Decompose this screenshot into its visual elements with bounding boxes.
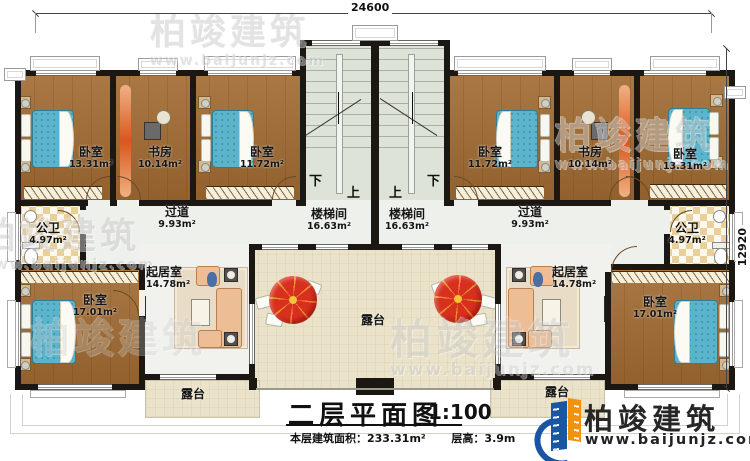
room-name: 楼梯间: [294, 208, 364, 222]
room-area: 11.72m²: [455, 160, 525, 171]
stair-direction-down: 下: [309, 170, 322, 189]
floor-plan-canvas: 柏竣建筑 www.baijunjz.com 柏竣建筑 www.baijunjz.…: [0, 0, 750, 461]
pillow: [719, 304, 729, 329]
window: [316, 244, 348, 250]
door-opening: [454, 200, 478, 206]
room-label-bedroom-top-right2: 卧室 11.72m²: [455, 146, 525, 171]
room-name: 卧室: [227, 146, 297, 160]
floor-area-label: 本层建筑面积：: [290, 432, 367, 445]
bay-window: [724, 86, 746, 99]
room-name: 卧室: [60, 294, 130, 308]
room-label-living-left: 起居室 14.78m²: [146, 266, 210, 291]
wall-segment: [139, 264, 145, 390]
room-label-terrace-right: 露台: [532, 386, 582, 400]
corner-table: [224, 332, 238, 346]
window-sill-hatch: [650, 184, 726, 198]
desk: [591, 122, 608, 140]
title-underline: [286, 424, 462, 426]
dimension-right-value: 12920: [736, 225, 749, 269]
room-area: 10.14m²: [125, 160, 195, 171]
floor-height-label: 层高：: [451, 432, 484, 445]
window: [452, 244, 488, 250]
brand-url: www.baijunjz.com: [585, 432, 750, 448]
room-label-stairwell-left: 楼梯间 16.63m²: [294, 208, 364, 233]
room-name: 起居室: [146, 266, 210, 280]
patio-umbrella: [269, 276, 317, 324]
room-area: 4.97m²: [652, 236, 722, 247]
room-name: 卧室: [620, 296, 690, 310]
room-name: 卧室: [650, 148, 720, 162]
terrace-parapet: [256, 388, 494, 390]
room-label-bedroom-top-left: 卧室 13.31m²: [56, 146, 126, 171]
room-name: 书房: [125, 146, 195, 160]
room-name: 书房: [555, 146, 625, 160]
room-name: 露台: [348, 314, 398, 328]
watermark-brand: 柏竣建筑: [150, 12, 310, 53]
room-area: 9.93m²: [142, 220, 212, 231]
dimension-top-value: 24600: [348, 1, 392, 14]
drawing-scale: 1:100: [428, 400, 492, 424]
bay-window: [204, 56, 296, 71]
window-sill-hatch: [612, 271, 729, 283]
wall-segment: [190, 70, 196, 206]
wall-segment: [444, 40, 450, 206]
wall-segment: [110, 70, 116, 206]
nightstand: [710, 94, 723, 107]
door-opening: [626, 200, 648, 206]
stair-direction-up: 上: [347, 182, 360, 201]
sliding-door: [495, 304, 501, 364]
stair-direction-down: 下: [427, 170, 440, 189]
stair-arrow-left: [338, 92, 339, 124]
room-name: 公卫: [13, 222, 83, 236]
coffee-table: [191, 299, 210, 326]
room-label-study-right: 书房 10.14m²: [555, 146, 625, 171]
room-label-bedroom-top-left2: 卧室 11.72m²: [227, 146, 297, 171]
room-area: 13.31m²: [650, 162, 720, 173]
pillow: [21, 139, 31, 162]
dimension-extension: [35, 13, 36, 33]
bay-window: [572, 58, 612, 71]
window-sill: [734, 300, 743, 368]
room-label-terrace-center: 露台: [348, 314, 398, 328]
wall-segment: [15, 264, 145, 270]
window: [402, 244, 434, 250]
sliding-door: [160, 374, 216, 380]
room-name: 露台: [168, 388, 218, 402]
toilet: [24, 248, 38, 265]
armchair: [198, 330, 222, 348]
room-label-bedroom-bottom-right: 卧室 17.01m²: [620, 296, 690, 321]
room-area: 11.72m²: [227, 160, 297, 171]
room-area: 16.63m²: [372, 222, 442, 233]
room-label-hall-left: 过道 9.93m²: [142, 206, 212, 231]
room-area: 14.78m²: [552, 280, 616, 291]
bay-window: [650, 56, 720, 71]
nightstand: [198, 96, 211, 109]
room-area: 4.97m²: [13, 236, 83, 247]
bay-window: [30, 56, 100, 71]
column-block: [356, 378, 394, 395]
bay-window: [138, 58, 178, 71]
stair-rail-left: [336, 54, 343, 194]
door-opening: [88, 200, 110, 206]
dimension-extension: [711, 13, 712, 33]
room-area: 17.01m²: [620, 310, 690, 321]
desk: [144, 122, 161, 140]
room-area: 14.78m²: [146, 280, 210, 291]
pillow: [21, 332, 31, 357]
room-name: 露台: [532, 386, 582, 400]
room-name: 过道: [142, 206, 212, 220]
desk-chair: [156, 110, 171, 125]
pillow: [719, 332, 729, 357]
person-figure: [533, 272, 543, 287]
bay-window: [352, 25, 398, 41]
pillow: [21, 114, 31, 137]
drawing-title: 二层平面图: [288, 395, 443, 432]
room-name: 卧室: [455, 146, 525, 160]
room-name: 起居室: [552, 266, 616, 280]
wall-segment: [300, 40, 306, 206]
room-label-bath-left: 公卫 4.97m²: [13, 222, 83, 247]
stair-rail-right: [408, 54, 415, 194]
bay-window: [454, 56, 546, 71]
stair-arrow-right: [412, 92, 413, 124]
armchair: [528, 330, 552, 348]
room-area: 17.01m²: [60, 308, 130, 319]
corner-table: [512, 332, 526, 346]
wall-segment: [554, 70, 560, 206]
room-label-bath-right: 公卫 4.97m²: [652, 222, 722, 247]
floor-area-value: 233.31m²: [367, 432, 426, 445]
room-label-hall-right: 过道 9.93m²: [495, 206, 565, 231]
room-name: 楼梯间: [372, 208, 442, 222]
window-sill: [7, 300, 16, 368]
room-area: 16.63m²: [294, 222, 364, 233]
dimension-line-right: [726, 48, 727, 388]
room-label-living-right: 起居室 14.78m²: [552, 266, 616, 291]
room-name: 卧室: [56, 146, 126, 160]
pillow: [201, 139, 211, 162]
floor-height-value: 3.9m: [484, 432, 515, 445]
room-name: 公卫: [652, 222, 722, 236]
room-label-stairwell-right: 楼梯间 16.63m²: [372, 208, 442, 233]
room-label-bedroom-bottom-left: 卧室 17.01m²: [60, 294, 130, 319]
door-opening: [272, 200, 296, 206]
sliding-door: [534, 374, 590, 380]
patio-umbrella: [434, 275, 482, 323]
stair-direction-up: 上: [389, 182, 402, 201]
pillow: [709, 112, 719, 135]
room-label-terrace-left: 露台: [168, 388, 218, 402]
corner-table: [224, 268, 238, 282]
pillow: [540, 114, 550, 137]
desk-chair: [581, 110, 596, 125]
nightstand: [538, 96, 551, 109]
window-sill-hatch: [21, 271, 138, 283]
room-area: 10.14m²: [555, 160, 625, 171]
room-label-bedroom-top-right: 卧室 13.31m²: [650, 148, 720, 173]
logo-building-icon: [551, 401, 567, 451]
pillow: [201, 114, 211, 137]
logo-building-icon: [568, 398, 581, 442]
room-name: 过道: [495, 206, 565, 220]
coffee-table: [542, 299, 561, 326]
room-area: 9.93m²: [495, 220, 565, 231]
door-opening: [117, 200, 139, 206]
drawing-info: 本层建筑面积：233.31m² 层高：3.9m: [290, 430, 515, 446]
sliding-door: [249, 304, 255, 364]
pillow: [21, 304, 31, 329]
room-label-study-left: 书房 10.14m²: [125, 146, 195, 171]
pillow: [540, 139, 550, 162]
window: [262, 244, 298, 250]
corner-table: [512, 268, 526, 282]
bay-window: [4, 68, 26, 81]
room-area: 13.31m²: [56, 160, 126, 171]
wall-post: [493, 378, 501, 390]
wall-segment: [445, 200, 735, 206]
door-opening: [139, 290, 145, 316]
